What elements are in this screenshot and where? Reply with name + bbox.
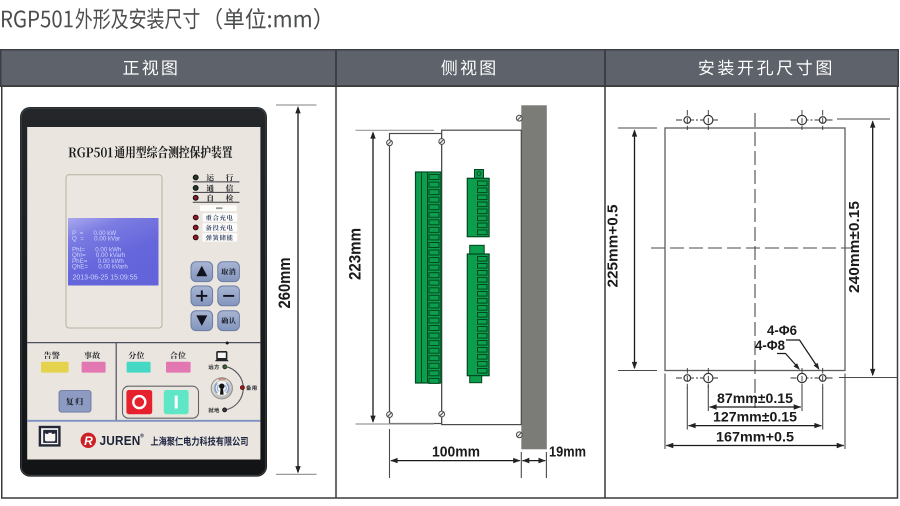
svg-text:240mm±0.15: 240mm±0.15 [847,201,863,293]
svg-text:100mm: 100mm [432,443,480,460]
svg-text:2013-06-25 15:09:55: 2013-06-25 15:09:55 [73,275,138,282]
svg-text:4-Φ6: 4-Φ6 [767,322,797,338]
svg-text:Q = 0.00 kVar: Q = 0.00 kVar [72,236,120,243]
svg-text:QhE= 0.00 kVarh: QhE= 0.00 kVarh [72,263,128,270]
svg-text:167mm+0.5: 167mm+0.5 [716,429,794,445]
svg-text:225mm+0.5: 225mm+0.5 [606,205,622,288]
svg-text:4-Φ8: 4-Φ8 [755,337,785,353]
svg-text:127mm±0.15: 127mm±0.15 [713,409,797,425]
svg-text:®: ® [140,433,144,440]
svg-text:JUREN: JUREN [100,434,141,448]
svg-text:260mm: 260mm [275,258,294,309]
svg-text:223mm: 223mm [346,228,365,280]
svg-text:R: R [84,434,93,448]
svg-text:19mm: 19mm [549,443,586,460]
svg-text:87mm±0.15: 87mm±0.15 [717,390,793,406]
